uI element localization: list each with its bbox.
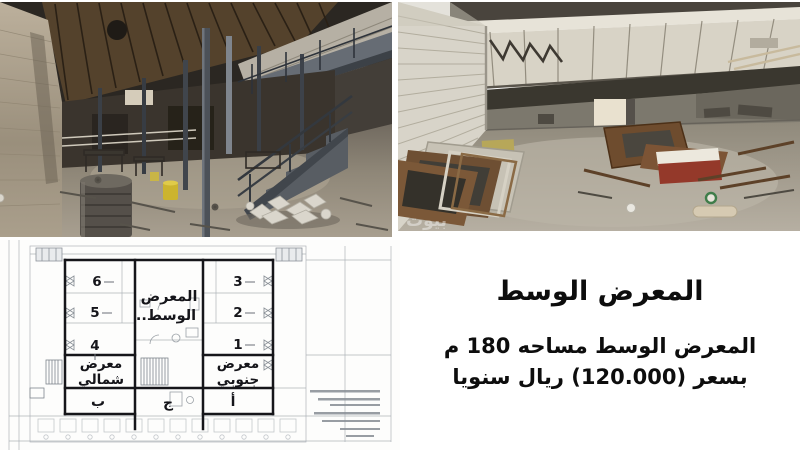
room-1-label: 1 xyxy=(233,337,242,353)
doorway-light xyxy=(594,99,627,126)
floor-plan: 6 5 4 3 2 1 المعرض الوسط.. معرض شمالي مع… xyxy=(0,240,400,450)
room-2-label: 2 xyxy=(233,305,242,321)
north-showroom-label-1: معرض xyxy=(80,356,123,372)
north-showroom-label-2: شمالي xyxy=(78,372,124,388)
plan-labels: 6 5 4 3 2 1 المعرض الوسط.. معرض شمالي مع… xyxy=(78,274,259,411)
skylight-opening xyxy=(125,90,153,105)
photo-warehouse-left xyxy=(0,2,392,237)
floor-plan-drawing: 6 5 4 3 2 1 المعرض الوسط.. معرض شمالي مع… xyxy=(0,240,400,450)
center-room-label-1: المعرض xyxy=(141,289,198,305)
photo-warehouse-left-art xyxy=(0,2,392,237)
barrel xyxy=(80,174,132,237)
south-showroom-label-2: جنوبي xyxy=(217,372,259,388)
room-4-label: 4 xyxy=(90,338,99,354)
south-showroom-label-1: معرض xyxy=(217,356,260,372)
info-panel: المعرض الوسط المعرض الوسط مساحه 180 م بس… xyxy=(400,240,800,450)
section-j-label: ج xyxy=(163,395,174,411)
duct-unit xyxy=(750,38,778,48)
section-b-label: ب xyxy=(91,394,105,410)
listing-title: المعرض الوسط xyxy=(400,276,800,307)
room-6-label: 6 xyxy=(92,274,101,290)
center-room-label-2: الوسط.. xyxy=(136,308,196,324)
photo-warehouse-right: بيوت xyxy=(398,2,800,231)
section-a-label: أ xyxy=(231,392,236,410)
listing-flyer: بيوت xyxy=(0,0,800,450)
watermark: بيوت xyxy=(406,211,447,231)
parking-stalls xyxy=(38,419,296,439)
photo-warehouse-right-art: بيوت xyxy=(398,2,800,231)
listing-price-line: بسعر (120.000) ريال سنويا xyxy=(400,362,800,393)
room-3-label: 3 xyxy=(233,274,242,290)
ceiling-fan xyxy=(107,20,127,40)
listing-area-line: المعرض الوسط مساحه 180 م xyxy=(400,331,800,362)
listing-details: المعرض الوسط مساحه 180 م بسعر (120.000) … xyxy=(400,331,800,393)
room-5-label: 5 xyxy=(90,305,99,321)
